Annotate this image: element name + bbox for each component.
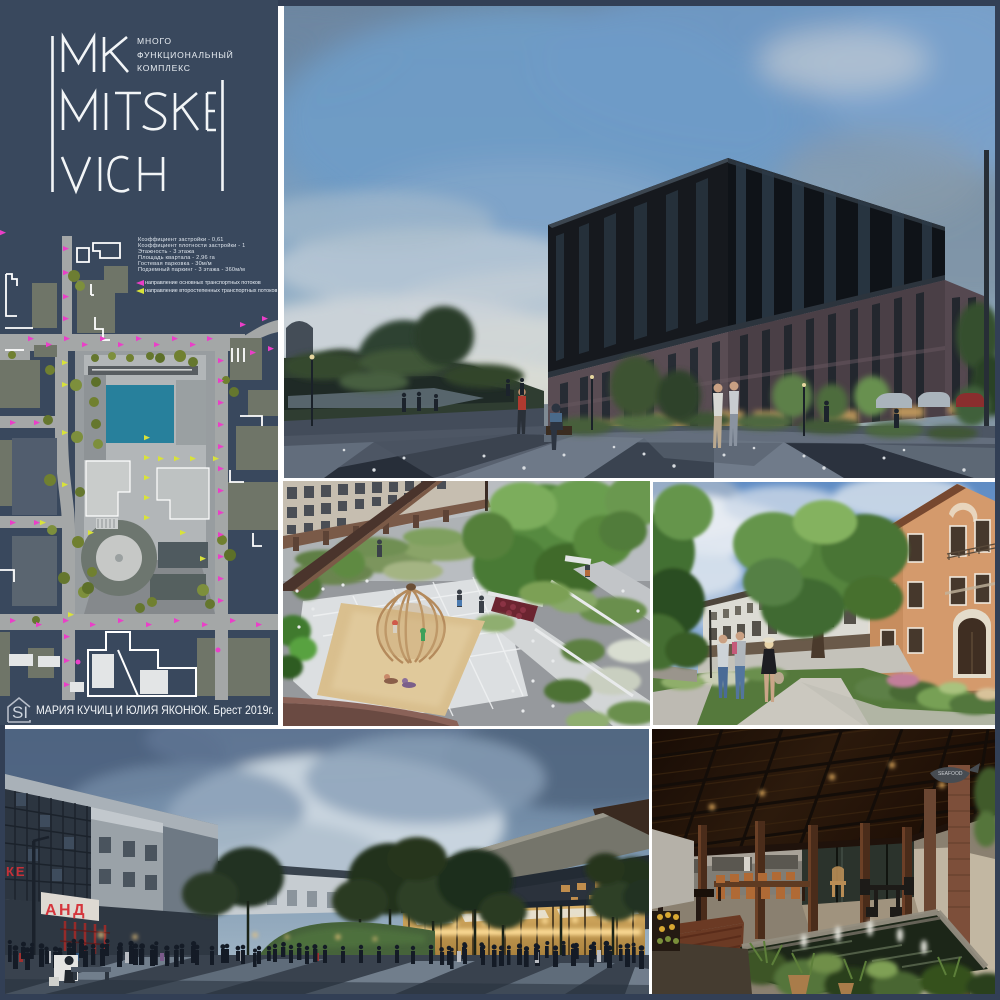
svg-text:SEAFOOD: SEAFOOD	[938, 771, 963, 777]
svg-text:КЕ: КЕ	[6, 864, 27, 879]
svg-text:МАРИЯ КУЧИЦ И ЮЛИЯ ЯКОНЮК. Бр: МАРИЯ КУЧИЦ И ЮЛИЯ ЯКОНЮК. Брест 2019г.	[36, 703, 274, 717]
svg-text:КОМПЛЕКС: КОМПЛЕКС	[137, 63, 191, 73]
svg-text:АНД: АНД	[45, 902, 87, 919]
svg-text:ФУНКЦИОНАЛЬНЫЙ: ФУНКЦИОНАЛЬНЫЙ	[137, 49, 234, 60]
svg-text:МНОГО: МНОГО	[137, 36, 172, 46]
svg-text:SI: SI	[12, 703, 28, 722]
